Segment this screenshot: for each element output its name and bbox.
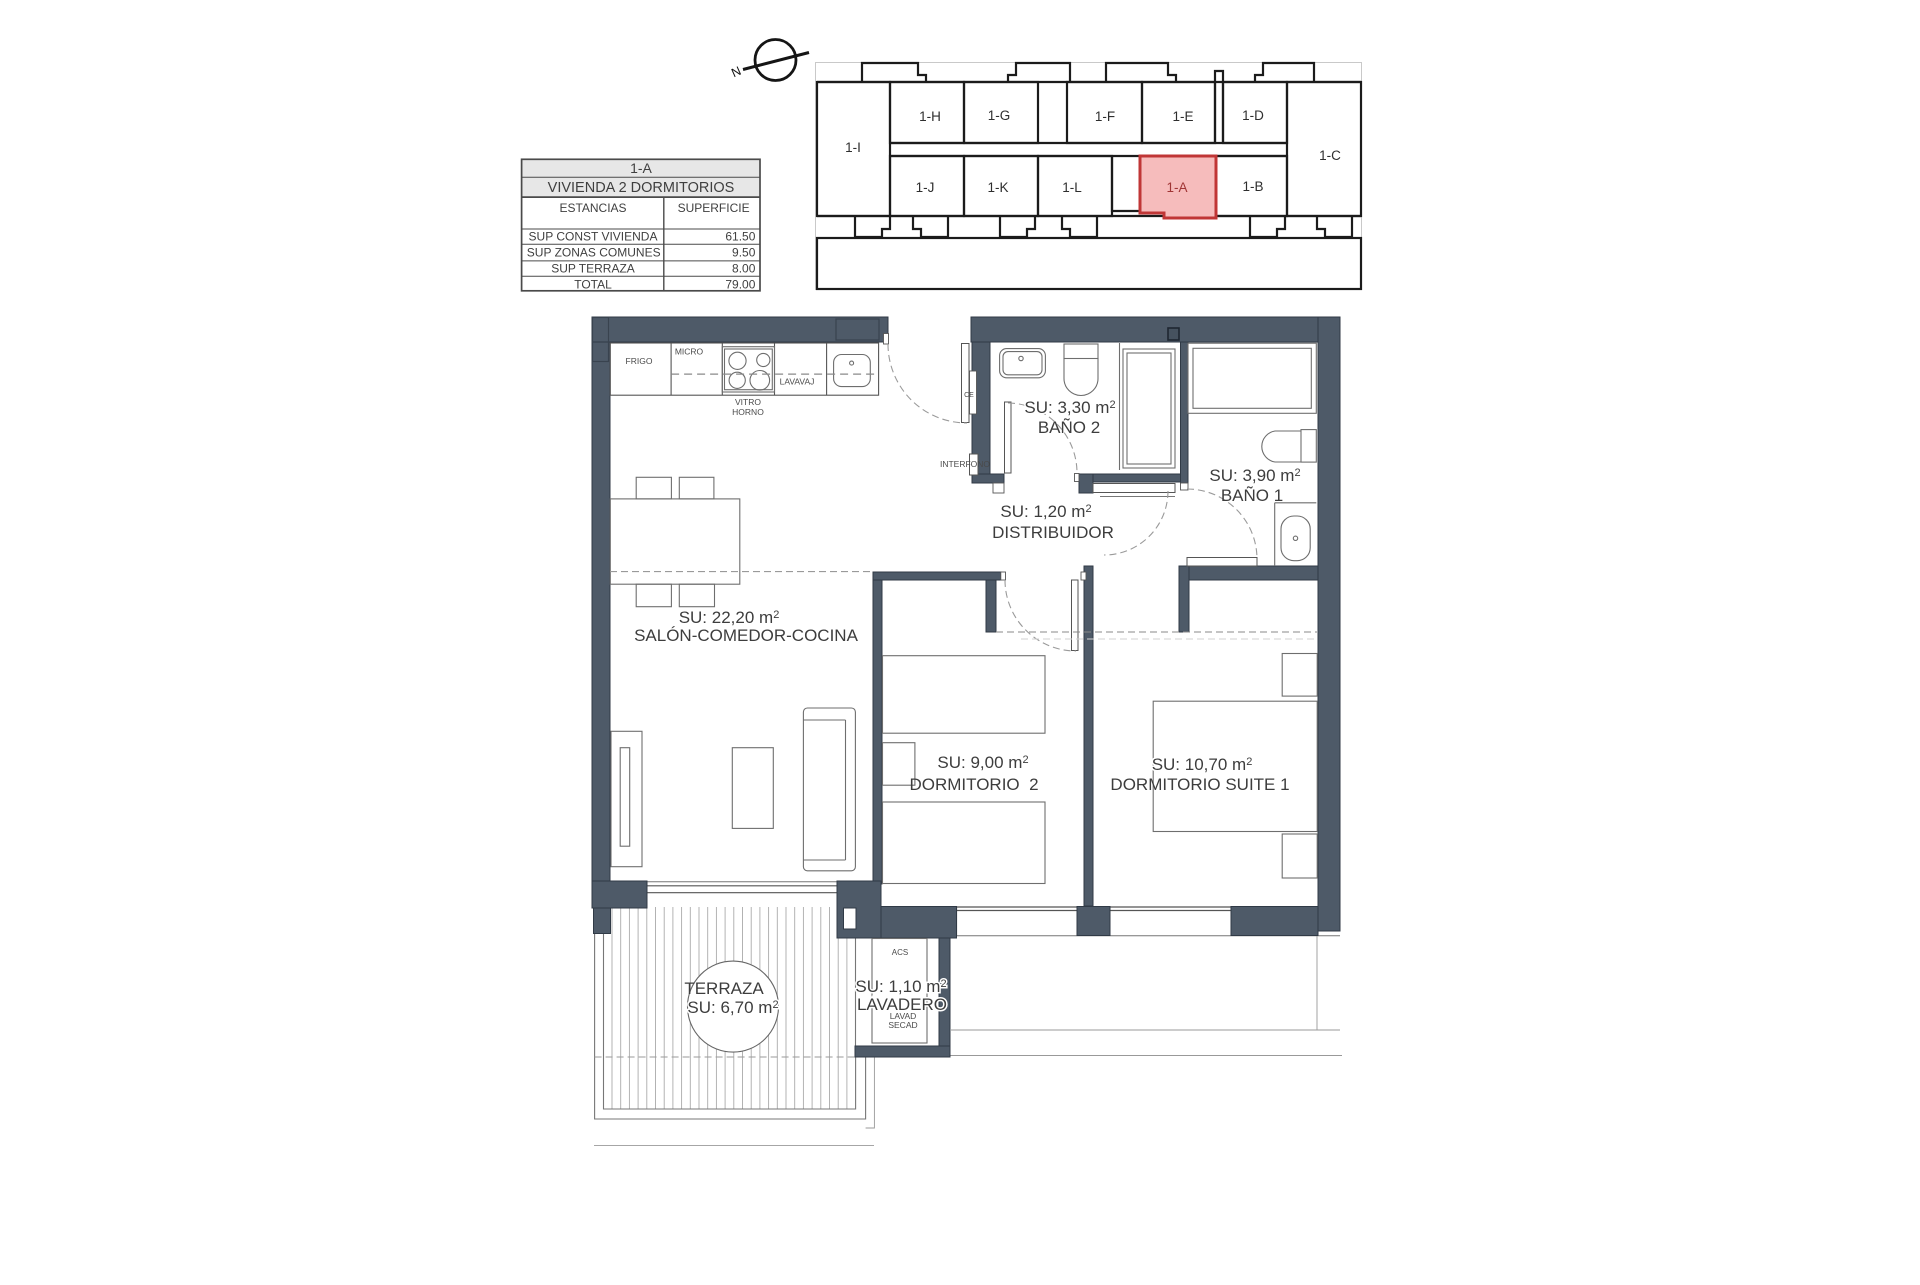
svg-text:1-J: 1-J [916,180,935,195]
svg-text:SECAD: SECAD [888,1020,917,1030]
svg-text:SU: 3,30 m2: SU: 3,30 m2 [1024,398,1115,417]
svg-text:SUP CONST VIVIENDA: SUP CONST VIVIENDA [529,230,658,244]
svg-text:SU: 1,20 m2: SU: 1,20 m2 [1000,502,1091,521]
svg-text:1-I: 1-I [845,140,861,155]
svg-text:SALÓN-COMEDOR-COCINA: SALÓN-COMEDOR-COCINA [634,626,859,645]
svg-text:VIVIENDA 2 DORMITORIOS: VIVIENDA 2 DORMITORIOS [548,180,735,196]
svg-text:SU: 9,00 m2: SU: 9,00 m2 [937,753,1028,772]
svg-text:SU: 6,70 m2: SU: 6,70 m2 [687,998,778,1017]
svg-text:CE: CE [964,392,974,399]
svg-text:79.00: 79.00 [725,278,755,292]
svg-text:ESTANCIAS: ESTANCIAS [559,201,626,215]
svg-text:1-H: 1-H [919,109,941,124]
svg-text:MICRO: MICRO [675,347,704,357]
svg-text:1-F: 1-F [1095,109,1115,124]
svg-text:VITRO: VITRO [735,397,761,407]
svg-text:1-D: 1-D [1242,108,1264,123]
svg-text:1-B: 1-B [1242,179,1263,194]
svg-text:1-C: 1-C [1319,148,1341,163]
svg-text:1-K: 1-K [987,180,1008,195]
svg-text:SU: 22,20 m2: SU: 22,20 m2 [679,608,780,627]
svg-text:HORNO: HORNO [732,407,764,417]
svg-text:SUP ZONAS COMUNES: SUP ZONAS COMUNES [527,246,661,260]
svg-text:SU: 3,90 m2: SU: 3,90 m2 [1209,466,1300,485]
svg-text:61.50: 61.50 [725,230,755,244]
svg-text:BAÑO 1: BAÑO 1 [1221,486,1283,505]
svg-text:FRIGO: FRIGO [626,356,653,366]
svg-text:8.00: 8.00 [732,262,756,276]
svg-text:TOTAL: TOTAL [574,278,612,292]
svg-text:INTERFONO: INTERFONO [940,459,990,469]
svg-text:SUP TERRAZA: SUP TERRAZA [551,262,635,276]
svg-text:1-G: 1-G [988,108,1011,123]
svg-text:DORMITORIO SUITE 1: DORMITORIO SUITE 1 [1110,775,1289,794]
svg-text:DORMITORIO 2: DORMITORIO 2 [909,775,1038,794]
svg-text:1-E: 1-E [1172,109,1193,124]
svg-text:TERRAZA: TERRAZA [684,979,764,998]
svg-text:SU: 1,10 m2: SU: 1,10 m2 [855,977,946,996]
svg-text:1-L: 1-L [1062,180,1082,195]
svg-text:SU: 10,70 m2: SU: 10,70 m2 [1152,755,1253,774]
svg-text:DISTRIBUIDOR: DISTRIBUIDOR [992,523,1114,542]
svg-text:ACS: ACS [892,948,908,957]
svg-text:1-A: 1-A [630,160,652,176]
svg-text:SUPERFICIE: SUPERFICIE [678,201,750,215]
svg-text:BAÑO 2: BAÑO 2 [1038,418,1100,437]
svg-text:1-A: 1-A [1166,180,1187,195]
svg-text:9.50: 9.50 [732,246,756,260]
svg-text:LAVAVAJ: LAVAVAJ [780,377,815,387]
